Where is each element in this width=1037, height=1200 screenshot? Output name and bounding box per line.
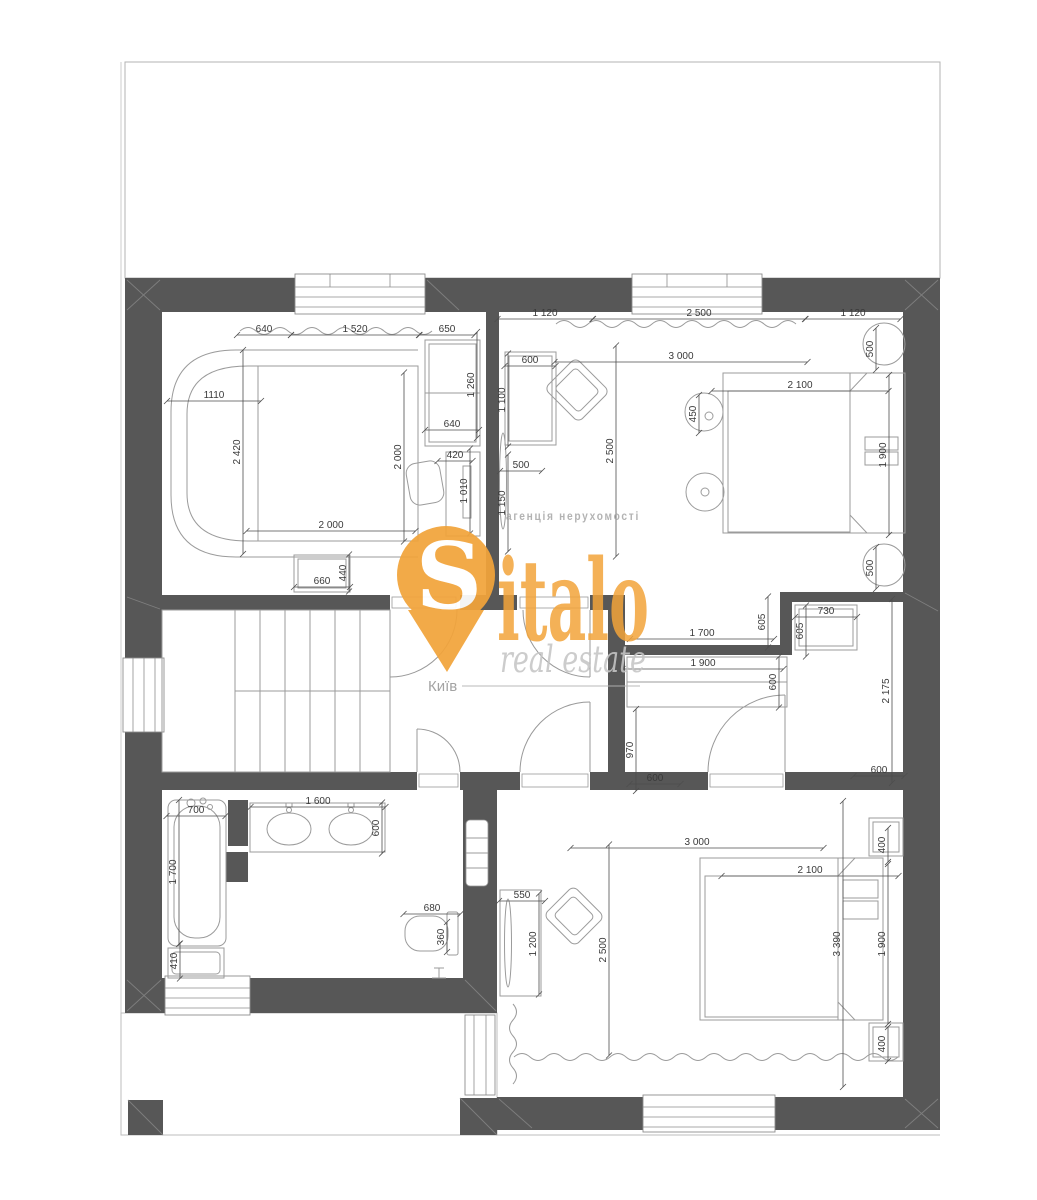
- svg-text:3 390: 3 390: [832, 931, 843, 956]
- svg-text:2 100: 2 100: [787, 380, 812, 391]
- pouf-bottom: [686, 473, 724, 511]
- svg-text:1 120: 1 120: [840, 308, 865, 319]
- dimension: 700: [164, 805, 229, 819]
- dimension: 3 390: [832, 798, 846, 1090]
- svg-text:730: 730: [818, 606, 835, 617]
- svg-text:1 260: 1 260: [466, 372, 477, 397]
- dimension: 650: [417, 324, 478, 338]
- dimension: 2 100: [719, 865, 902, 879]
- dimension: 3 000: [568, 837, 827, 851]
- svg-text:600: 600: [871, 765, 888, 776]
- svg-text:600: 600: [522, 355, 539, 366]
- dimension: 1110: [164, 390, 264, 404]
- bed-room1: [171, 350, 418, 557]
- svg-text:640: 640: [444, 419, 461, 430]
- svg-text:605: 605: [757, 613, 768, 630]
- window-bedroom-side: [465, 1015, 495, 1095]
- svg-text:1 010: 1 010: [459, 478, 470, 503]
- svg-text:680: 680: [424, 903, 441, 914]
- door-bathroom: [417, 729, 460, 772]
- vanity-double-sink: [250, 803, 385, 852]
- svg-text:1110: 1110: [204, 390, 225, 401]
- svg-text:500: 500: [513, 460, 530, 471]
- chair-room1: [405, 459, 446, 506]
- dimension: 640: [234, 324, 294, 338]
- staircase: [162, 610, 390, 772]
- svg-text:1 120: 1 120: [532, 308, 557, 319]
- dimension: 1 520: [288, 324, 422, 338]
- svg-text:440: 440: [338, 564, 349, 581]
- watermark-logo: агенція нерухомості S italo real estate …: [397, 509, 649, 695]
- curtain-line: [514, 1054, 898, 1061]
- brand-city: Київ: [428, 678, 457, 695]
- curtain-line: [510, 1004, 517, 1084]
- brand-tagline: real estate: [500, 638, 646, 681]
- window-top-left: [295, 274, 425, 314]
- svg-text:360: 360: [436, 928, 447, 945]
- dimension-layer: 6401 52065011102 4201 2606402 0004201 01…: [164, 308, 908, 1090]
- svg-text:3 000: 3 000: [668, 351, 693, 362]
- window-bottom: [643, 1095, 775, 1132]
- floor-plan-drawing: 6401 52065011102 4201 2606402 0004201 01…: [0, 0, 1037, 1200]
- svg-text:410: 410: [169, 952, 180, 969]
- dimension: 1 200: [528, 891, 542, 998]
- svg-text:500: 500: [865, 559, 876, 576]
- upper-terrace: [125, 62, 940, 278]
- svg-text:420: 420: [447, 450, 464, 461]
- dimension: 605: [795, 603, 809, 660]
- dimension: 730: [792, 606, 860, 620]
- svg-text:2 500: 2 500: [598, 937, 609, 962]
- svg-text:500: 500: [865, 340, 876, 357]
- dimension: 2 000: [244, 520, 419, 534]
- dimension: 500: [497, 460, 545, 474]
- svg-text:1 700: 1 700: [689, 628, 714, 639]
- svg-text:1 900: 1 900: [877, 931, 888, 956]
- brand-initial: S: [416, 522, 482, 630]
- dimension: 600: [371, 800, 385, 857]
- lower-terrace: [121, 1013, 497, 1135]
- svg-text:605: 605: [795, 622, 806, 639]
- svg-text:640: 640: [256, 324, 273, 335]
- svg-text:550: 550: [514, 890, 531, 901]
- svg-text:450: 450: [688, 405, 699, 422]
- svg-text:1 700: 1 700: [168, 859, 179, 884]
- svg-text:600: 600: [371, 819, 382, 836]
- door-bedroom: [520, 702, 590, 772]
- dimension: 2 100: [709, 380, 892, 394]
- brand-pin-icon: S: [397, 522, 495, 672]
- svg-text:650: 650: [439, 324, 456, 335]
- watermark-agency-text: агенція нерухомості: [506, 509, 640, 523]
- svg-text:2 500: 2 500: [605, 438, 616, 463]
- curtain-lines: [240, 321, 898, 1085]
- window-bathroom: [165, 976, 250, 1015]
- dimension: 1 900: [877, 861, 891, 1027]
- curtain-line: [556, 321, 796, 328]
- toilet: [405, 912, 458, 955]
- dimension: 2 500: [598, 842, 612, 1059]
- dimension: 605: [757, 594, 771, 651]
- svg-text:2 420: 2 420: [232, 439, 243, 464]
- svg-text:970: 970: [625, 741, 636, 758]
- dimension: 600: [502, 355, 559, 369]
- svg-text:2 000: 2 000: [318, 520, 343, 531]
- svg-text:600: 600: [768, 673, 779, 690]
- dimension: 1 900: [878, 372, 892, 538]
- svg-text:1 900: 1 900: [690, 658, 715, 669]
- dimension: 680: [401, 903, 464, 917]
- svg-text:2 175: 2 175: [881, 678, 892, 703]
- svg-text:2 100: 2 100: [797, 865, 822, 876]
- svg-text:1 900: 1 900: [878, 442, 889, 467]
- svg-text:1 600: 1 600: [305, 796, 330, 807]
- svg-text:600: 600: [647, 773, 664, 784]
- dimension: 2 000: [393, 370, 407, 545]
- svg-text:700: 700: [188, 805, 205, 816]
- dimension: 400: [877, 825, 891, 865]
- svg-text:660: 660: [314, 576, 331, 587]
- dimension: 2 420: [232, 347, 246, 557]
- dimension: 1 260: [466, 329, 480, 441]
- chair-bedroom: [544, 886, 605, 947]
- floor-plan-page: 6401 52065011102 4201 2606402 0004201 01…: [0, 0, 1037, 1200]
- svg-text:3 000: 3 000: [684, 837, 709, 848]
- dimension: 640: [422, 419, 482, 433]
- dimension: 2 175: [881, 596, 895, 786]
- dimension: 1 700: [627, 628, 777, 642]
- svg-text:2 500: 2 500: [686, 308, 711, 319]
- svg-text:2 000: 2 000: [393, 444, 404, 469]
- bed-bedroom: [700, 858, 883, 1020]
- svg-text:400: 400: [877, 836, 888, 853]
- floor-drain: [432, 968, 446, 978]
- svg-text:1 520: 1 520: [342, 324, 367, 335]
- dimension: 3 000: [552, 351, 811, 365]
- dimension: 2 500: [605, 343, 619, 560]
- svg-text:400: 400: [877, 1035, 888, 1052]
- window-left-wall: [123, 658, 164, 732]
- svg-text:1 100: 1 100: [497, 387, 508, 412]
- towel-rail: [466, 820, 488, 886]
- svg-text:1 200: 1 200: [528, 931, 539, 956]
